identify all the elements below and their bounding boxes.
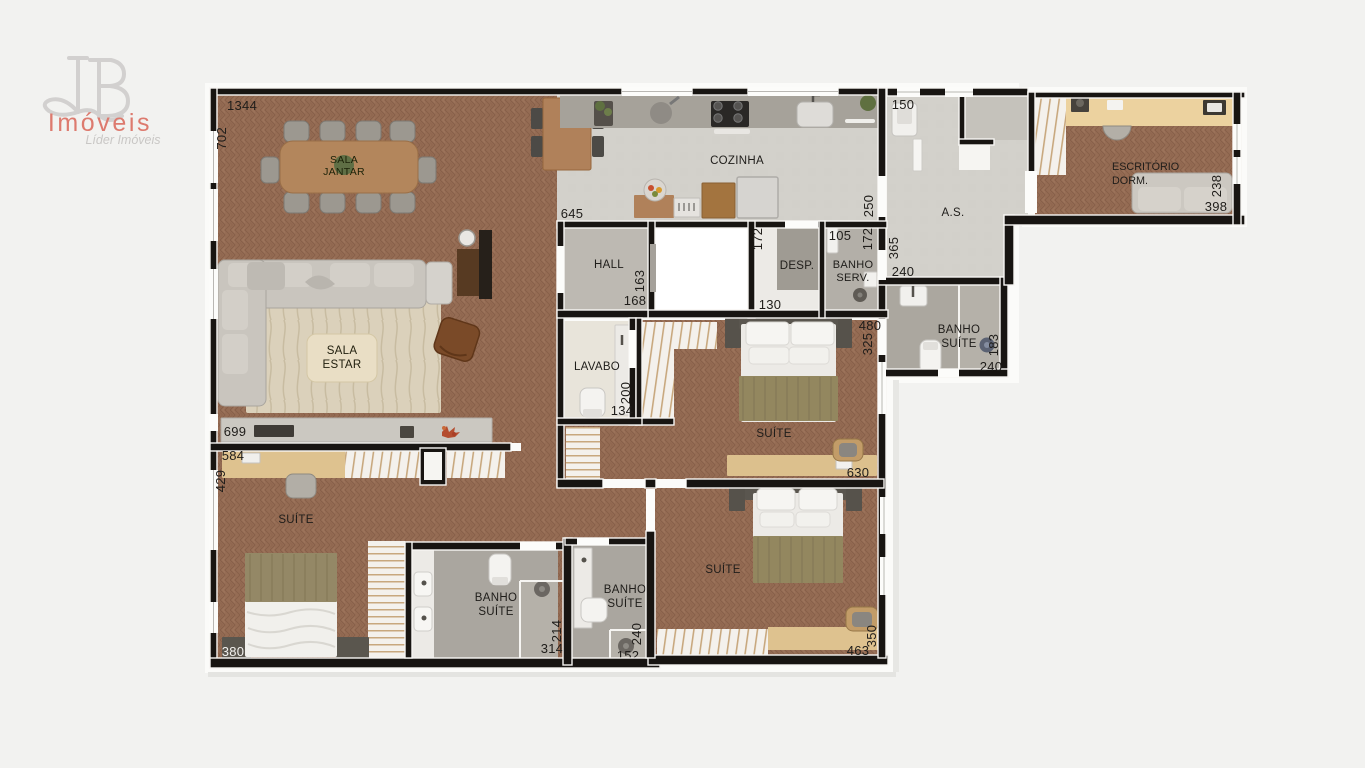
svg-text:ESTAR: ESTAR [323,359,362,371]
svg-text:SUÍTE: SUÍTE [607,597,642,610]
svg-text:SALA: SALA [330,154,358,166]
svg-text:699: 699 [224,424,247,439]
svg-text:DESP.: DESP. [780,260,815,272]
svg-text:BANHO: BANHO [833,259,874,271]
svg-text:COZINHA: COZINHA [710,155,764,167]
svg-text:325: 325 [860,333,875,356]
svg-text:SERV.: SERV. [836,272,869,284]
svg-text:380: 380 [222,644,245,659]
svg-text:200: 200 [618,382,633,405]
svg-text:365: 365 [886,237,901,260]
svg-text:BANHO: BANHO [938,324,980,336]
svg-text:350: 350 [864,625,879,648]
svg-text:645: 645 [561,206,584,221]
svg-text:130: 130 [759,297,782,312]
svg-text:DORM.: DORM. [1112,175,1148,187]
svg-text:398: 398 [1205,199,1228,214]
svg-text:429: 429 [213,470,228,493]
svg-text:SUÍTE: SUÍTE [478,605,513,618]
svg-text:480: 480 [859,318,882,333]
svg-text:105: 105 [829,228,852,243]
svg-text:ESCRITÓRIO: ESCRITÓRIO [1112,160,1179,173]
svg-text:BANHO: BANHO [604,584,646,596]
svg-text:168: 168 [624,293,647,308]
svg-text:172: 172 [860,228,875,251]
svg-text:172: 172 [750,228,765,251]
svg-text:183: 183 [986,334,1001,357]
svg-text:SUÍTE: SUÍTE [278,513,313,526]
svg-text:SALA: SALA [327,345,358,357]
svg-text:LAVABO: LAVABO [574,361,620,373]
svg-text:A.S.: A.S. [942,207,965,219]
svg-text:240: 240 [892,264,915,279]
svg-text:584: 584 [222,448,245,463]
svg-text:163: 163 [632,270,647,293]
svg-text:JANTAR: JANTAR [323,166,365,178]
svg-text:240: 240 [629,623,644,646]
svg-text:SUÍTE: SUÍTE [705,563,740,576]
svg-text:SUÍTE: SUÍTE [756,427,791,440]
svg-text:Líder Imóveis: Líder Imóveis [85,133,160,147]
svg-text:238: 238 [1209,175,1224,198]
svg-text:214: 214 [549,620,564,643]
svg-text:630: 630 [847,465,870,480]
svg-text:250: 250 [861,195,876,218]
svg-text:150: 150 [892,97,915,112]
svg-text:702: 702 [214,127,229,150]
svg-text:HALL: HALL [594,259,624,271]
svg-text:1344: 1344 [227,98,257,113]
svg-text:BANHO: BANHO [475,592,517,604]
svg-text:SUÍTE: SUÍTE [941,337,976,350]
svg-text:240: 240 [980,359,1003,374]
